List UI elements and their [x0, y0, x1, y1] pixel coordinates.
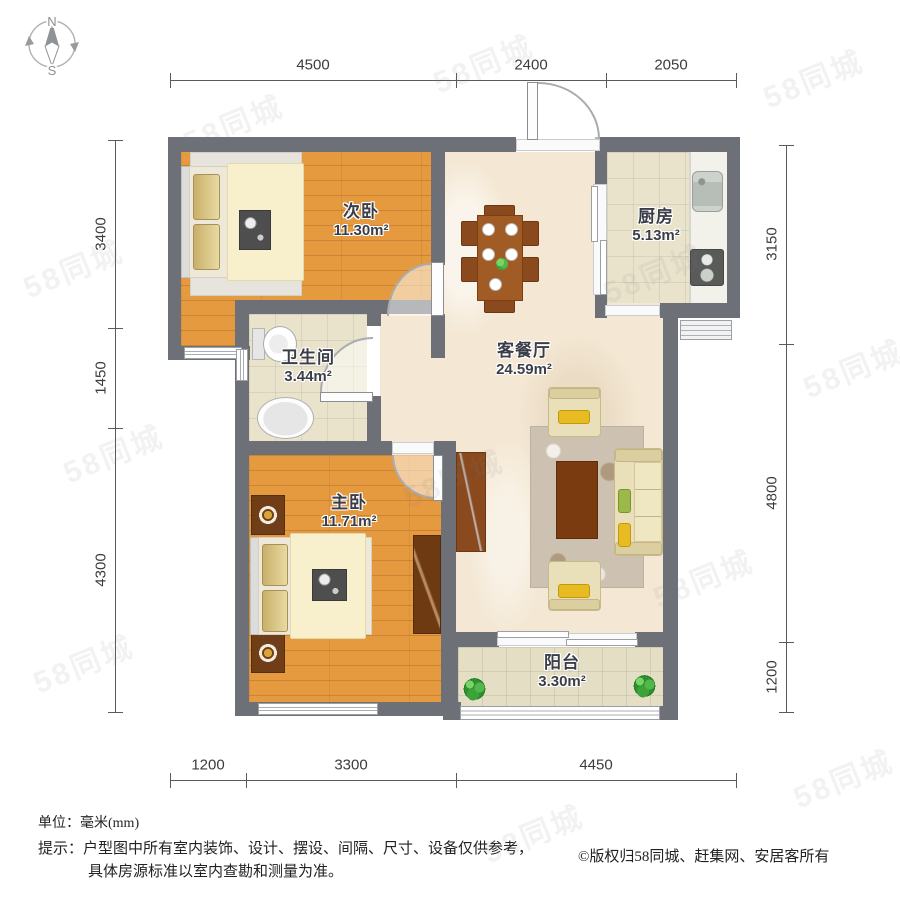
room-area: 3.44m²: [281, 368, 335, 387]
plate: [489, 278, 502, 291]
dim-tick: [456, 773, 457, 788]
dim-tick: [108, 428, 123, 429]
room-name: 阳台: [538, 652, 586, 673]
dimension-line-bottom: [170, 780, 736, 781]
kitchen-opening: [605, 305, 660, 316]
watermark: 58同城: [16, 227, 130, 307]
dining-chair: [461, 221, 478, 246]
wall: [235, 441, 392, 455]
sofa-pillow-yellow: [618, 523, 631, 547]
room-area: 5.13m²: [632, 227, 680, 246]
room-label-master-bedroom: 主卧 11.71m²: [321, 492, 376, 532]
pillow: [262, 590, 288, 632]
dining-chair: [484, 299, 515, 313]
sofa-seat: [634, 462, 662, 542]
svg-text:S: S: [48, 63, 57, 78]
nightstand: [251, 495, 285, 535]
wall: [660, 303, 740, 318]
window: [258, 703, 378, 715]
armchair-cushion: [558, 584, 590, 598]
kitchen-stove: [690, 249, 724, 286]
dim-label: 1200: [764, 660, 781, 693]
bed-tray: [239, 210, 271, 250]
dim-label: 4500: [296, 57, 329, 74]
watermark: 58同城: [756, 37, 870, 117]
room-label-kitchen: 厨房 5.13m²: [632, 206, 680, 246]
wall: [727, 137, 740, 318]
bathroom-door-leaf: [320, 392, 373, 402]
armchair-cushion: [558, 410, 590, 424]
balcony-plant: [459, 674, 490, 704]
dim-label: 2050: [654, 57, 687, 74]
nightstand: [251, 633, 285, 673]
sofa-pillow-green: [618, 489, 631, 513]
dimension-line-top: [170, 80, 736, 81]
watermark: 58同城: [56, 412, 170, 492]
copyright: ©版权归58同城、赶集网、安居客所有: [578, 845, 829, 866]
dim-tick: [779, 344, 794, 345]
bed-tray: [312, 569, 347, 601]
dim-label: 1200: [191, 757, 224, 774]
room-area: 24.59m²: [496, 361, 552, 380]
dim-tick: [779, 712, 794, 713]
kitchen-sliding-pane: [600, 240, 607, 295]
floorplan-canvas: N S: [0, 0, 900, 900]
dim-label: 3300: [334, 757, 367, 774]
dim-label: 3400: [93, 217, 110, 250]
plate: [482, 248, 495, 261]
dim-label: 3150: [764, 227, 781, 260]
room-name: 主卧: [321, 492, 376, 513]
dim-tick: [108, 140, 123, 141]
room-label-living-dining: 客餐厅 24.59m²: [496, 340, 552, 380]
watermark: 58同城: [476, 792, 590, 872]
kitchen-sink: [692, 171, 723, 212]
wall: [443, 706, 460, 720]
room-name: 次卧: [333, 201, 388, 222]
wall: [431, 137, 445, 265]
wardrobe: [413, 535, 441, 634]
dim-tick: [736, 773, 737, 788]
room-area: 11.71m²: [321, 513, 376, 532]
dim-label: 1450: [93, 361, 110, 394]
entry-threshold: [516, 139, 600, 151]
wall: [663, 318, 678, 720]
kitchen-sliding-pane: [591, 186, 598, 242]
dim-label: 4800: [764, 476, 781, 509]
room-area: 3.30m²: [538, 673, 586, 692]
room-name: 厨房: [632, 206, 680, 227]
dining-chair: [461, 257, 478, 282]
dim-tick: [779, 145, 794, 146]
room-name: 卫生间: [281, 347, 335, 368]
pillow: [193, 174, 220, 220]
dim-tick: [170, 73, 171, 88]
wall: [235, 441, 249, 716]
dim-tick: [108, 328, 123, 329]
dim-label: 4300: [93, 553, 110, 586]
pillow: [262, 544, 288, 586]
wall: [595, 303, 605, 318]
dining-chair: [522, 257, 539, 282]
armchair-back: [549, 388, 600, 399]
plate: [505, 223, 518, 236]
wall: [168, 137, 516, 152]
dimension-line-left: [115, 140, 116, 712]
disclaimer-line1: 提示：户型图中所有室内装饰、设计、摆设、间隔、尺寸、设备仅供参考，: [38, 837, 533, 858]
dim-tick: [779, 642, 794, 643]
dim-tick: [108, 712, 123, 713]
wall: [443, 632, 499, 647]
tv-cabinet: [456, 452, 486, 552]
room-area: 11.30m²: [333, 222, 388, 241]
table-plant: [496, 258, 508, 270]
wall: [367, 300, 381, 326]
wall: [168, 137, 181, 360]
dim-label: 4450: [579, 757, 612, 774]
watermark: 58同城: [786, 737, 900, 817]
unit-label: 单位：毫米(mm): [38, 812, 139, 832]
utility-steps: [680, 320, 732, 340]
pillow: [193, 224, 220, 270]
dim-tick: [736, 73, 737, 88]
entry-door-arc: [538, 82, 600, 139]
wall: [600, 137, 740, 152]
bathtub: [257, 397, 314, 439]
compass-icon: N S: [16, 6, 88, 78]
room-label-balcony: 阳台 3.30m²: [538, 652, 586, 692]
dim-tick: [456, 73, 457, 88]
window: [184, 347, 242, 359]
room-label-bathroom: 卫生间 3.44m²: [281, 347, 335, 387]
wall: [431, 314, 445, 358]
master-bedroom-door-leaf: [433, 455, 443, 501]
watermark: 58同城: [796, 327, 900, 407]
dim-tick: [246, 773, 247, 788]
dim-tick: [170, 773, 171, 788]
balcony-sliding-pane: [566, 639, 638, 646]
room-name: 客餐厅: [496, 340, 552, 361]
dimension-line-right: [786, 145, 787, 712]
coffee-table: [556, 461, 598, 539]
svg-text:N: N: [47, 14, 56, 29]
plate: [482, 223, 495, 236]
window: [236, 349, 248, 381]
entry-door-leaf: [527, 82, 538, 140]
master-door-threshold: [392, 442, 434, 454]
secondary-bedroom-door-leaf: [431, 262, 444, 316]
armchair-back: [549, 599, 600, 610]
room-label-secondary-bedroom: 次卧 11.30m²: [333, 201, 388, 241]
window: [460, 706, 660, 720]
plate: [505, 248, 518, 261]
disclaimer-line2: 具体房源标准以室内查勘和测量为准。: [88, 860, 343, 881]
watermark: 58同城: [26, 622, 140, 702]
secondary-bedroom-floor-lobe: [181, 300, 237, 346]
dim-tick: [606, 73, 607, 88]
balcony-sliding-pane: [497, 631, 569, 638]
sofa-armrest: [615, 449, 662, 462]
dim-label: 2400: [514, 57, 547, 74]
dining-chair: [522, 221, 539, 246]
balcony-plant: [629, 671, 660, 701]
